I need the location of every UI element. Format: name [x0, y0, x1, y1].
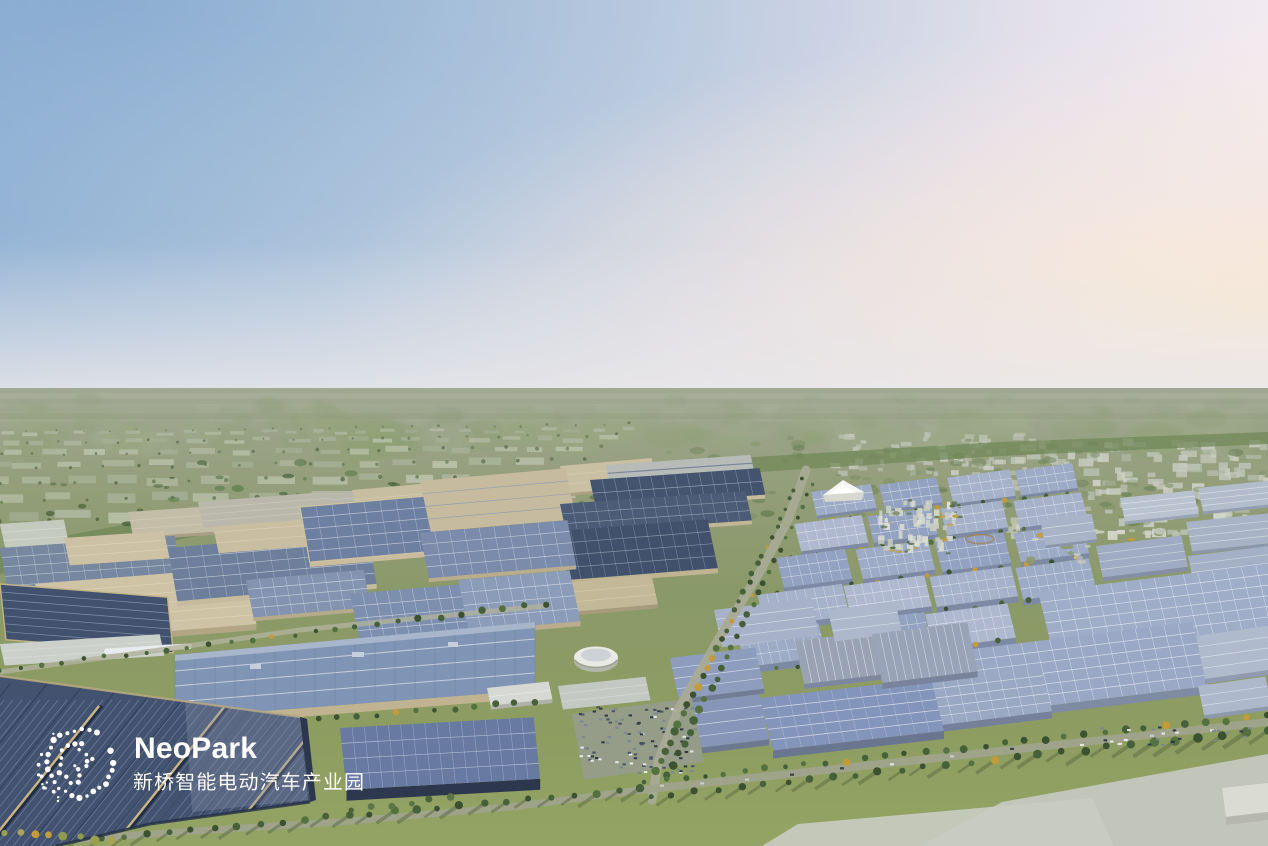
svg-text:NeoPark: NeoPark	[134, 732, 257, 765]
